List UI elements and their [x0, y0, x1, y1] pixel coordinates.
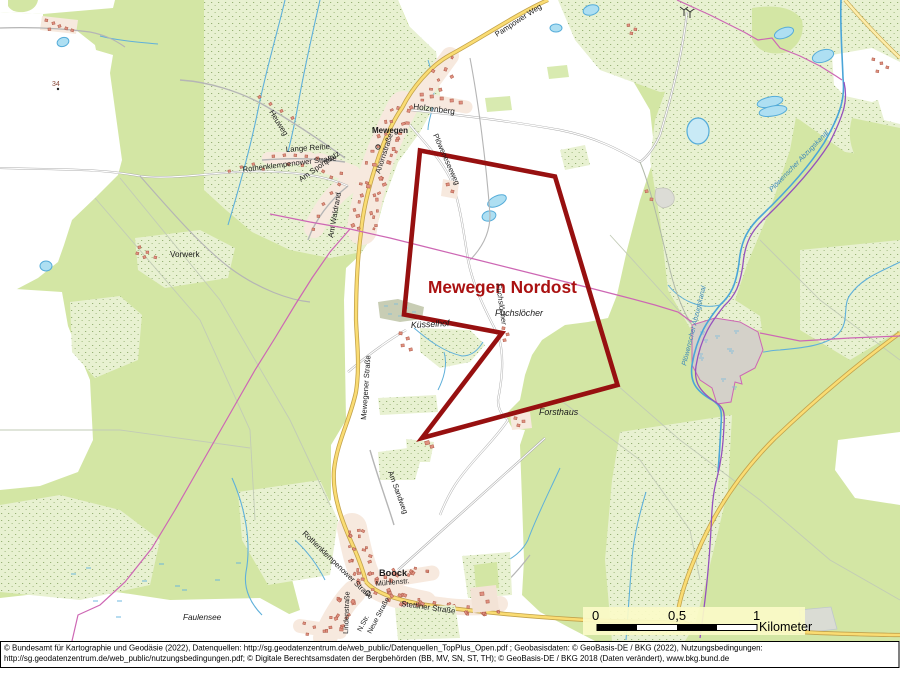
svg-text:Faulensee: Faulensee: [183, 613, 222, 622]
svg-text:Kilometer: Kilometer: [759, 620, 812, 634]
svg-text:0,5: 0,5: [668, 608, 686, 623]
svg-text:Vorwerk: Vorwerk: [170, 250, 200, 259]
svg-text:http://sg.geodatenzentrum.de/w: http://sg.geodatenzentrum.de/web_public/…: [4, 654, 730, 663]
svg-text:Küsselhof: Küsselhof: [411, 318, 452, 330]
svg-text:34: 34: [52, 81, 60, 88]
svg-text:© Bundesamt für Kartographie u: © Bundesamt für Kartographie und Geodäsi…: [4, 644, 763, 653]
svg-text:Lindenstraße: Lindenstraße: [341, 591, 351, 634]
svg-text:Forsthaus: Forsthaus: [539, 407, 579, 417]
svg-text:0: 0: [592, 608, 599, 623]
